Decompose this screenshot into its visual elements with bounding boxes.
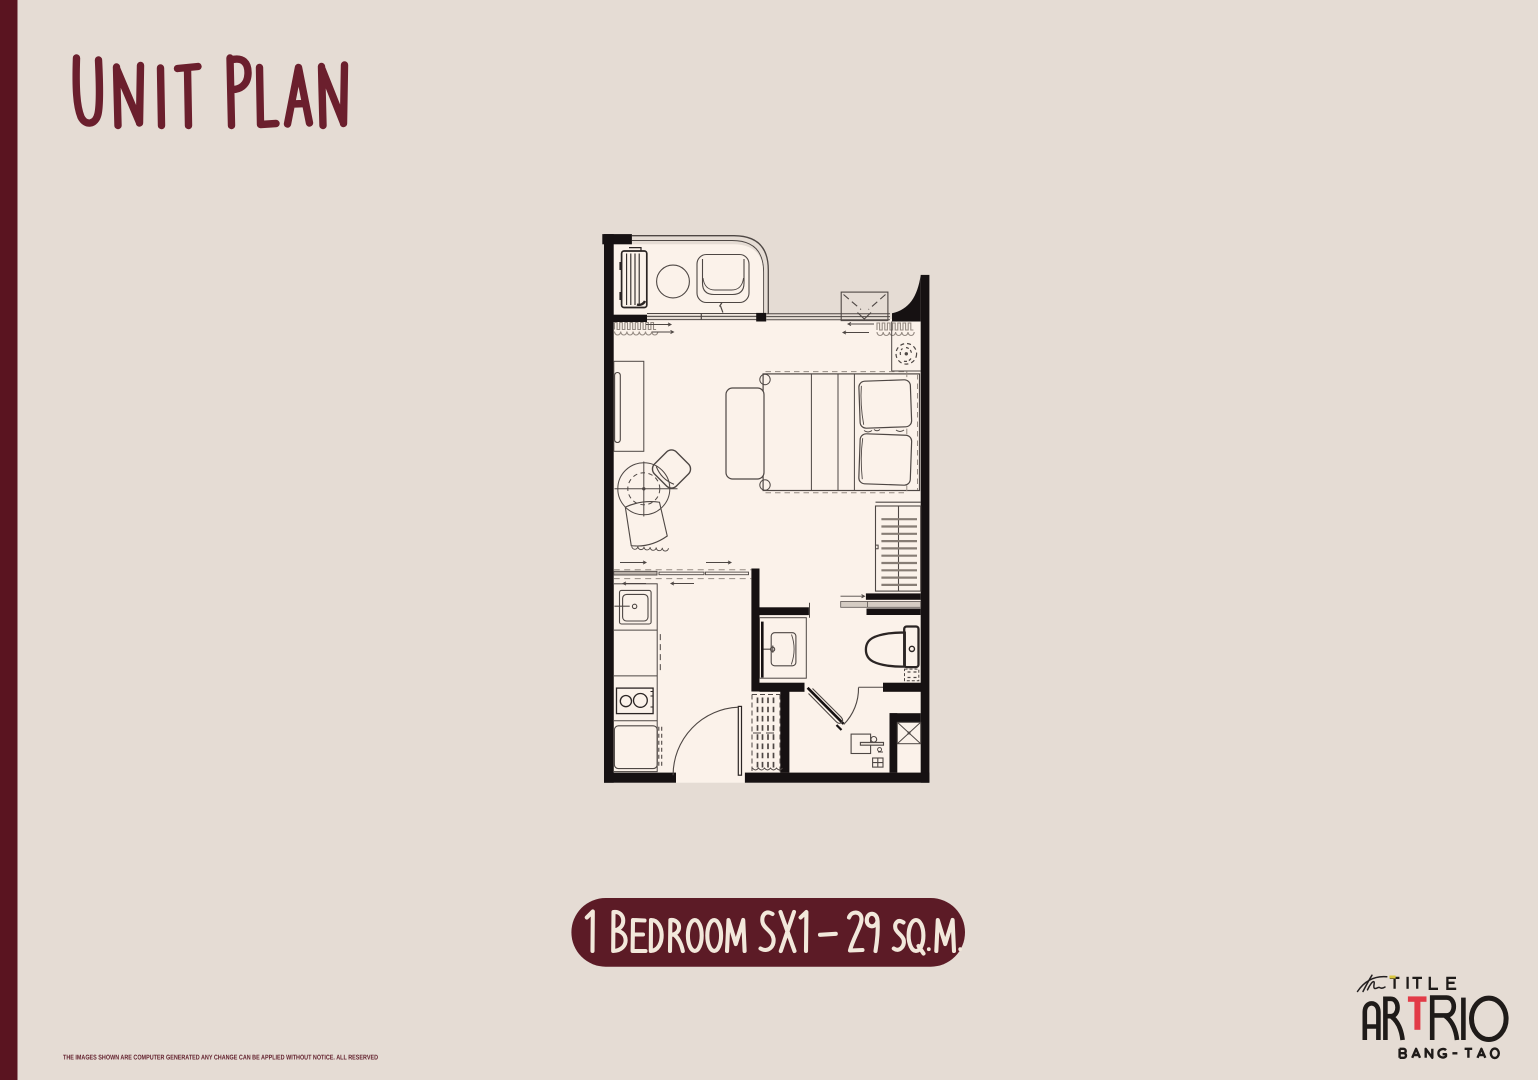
svg-text:THE IMAGES SHOWN ARE COMPUTER: THE IMAGES SHOWN ARE COMPUTER GENERATED … (63, 1055, 378, 1062)
